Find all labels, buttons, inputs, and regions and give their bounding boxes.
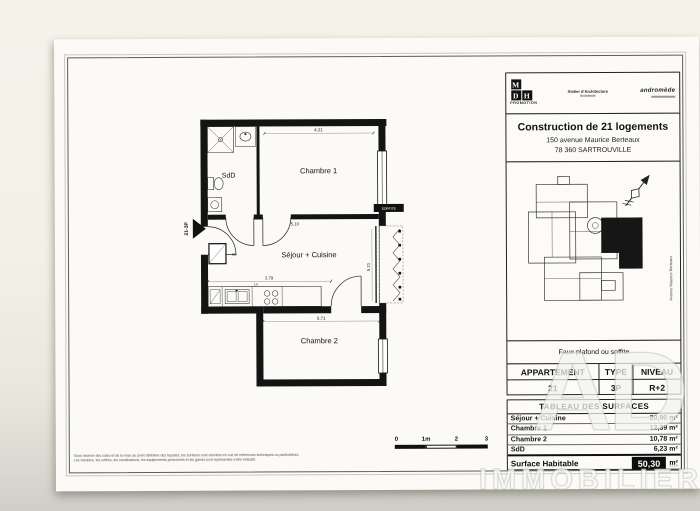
surfaces-table: TABLEAU DES SURFACES Séjour + Cuisine 20… — [507, 399, 682, 471]
scale-label-2: 2 — [455, 437, 458, 443]
value-type: 3P — [599, 380, 634, 395]
dim-kitchen-width: 3.79 — [265, 275, 274, 280]
entrance-label: 21-3P — [184, 221, 190, 235]
surface-label: Chambre 2 — [511, 435, 650, 443]
scale-bar: 0 1m 2 3 — [395, 437, 491, 453]
architect-title: Architecte — [540, 94, 635, 98]
scale-label-1m: 1m — [422, 437, 431, 443]
street-label: Avenue Maurice Berteaux — [668, 256, 673, 301]
room-label-sdd: SdD — [222, 173, 236, 180]
dim-sejour-height: 5.21 — [366, 262, 371, 271]
partner-logo: andromède — [635, 88, 675, 94]
project-title: Construction de 21 logements — [506, 121, 679, 134]
dim-chambre2-width: 5.71 — [317, 316, 326, 321]
room-label-chambre2: Chambre 2 — [301, 336, 338, 345]
surface-row: Chambre 1 12,39 m² — [508, 424, 681, 435]
drawing-frame: SOFFITE 21-3P EB — [67, 55, 685, 474]
logo-caption: PROMOTION — [510, 101, 540, 105]
soffite-label: SOFFITE — [382, 207, 397, 211]
closet-label: EB — [232, 253, 237, 257]
apartment-table-values: 21 3P R+2 — [508, 380, 681, 396]
surface-value: 12,39 m² — [650, 425, 678, 432]
surface-value: 6,23 m² — [654, 446, 678, 453]
apartment-location — [601, 217, 643, 268]
surface-value: 20,90 m² — [650, 415, 678, 422]
bathroom-fixtures — [207, 127, 255, 212]
kitchen-counter: LV — [208, 282, 321, 306]
room-label-chambre1: Chambre 1 — [300, 166, 337, 175]
value-niveau: R+2 — [634, 380, 681, 395]
ceiling-note: Faux plafond ou soffite — [506, 340, 681, 365]
header-niveau: NIVEAU — [634, 364, 681, 379]
window-chambre2 — [378, 339, 387, 373]
disclaimer-line-2: Les meubles, les coffres, les canalisati… — [74, 457, 404, 463]
partner-logo-block: andromède — [635, 88, 675, 98]
surface-row: Séjour + Cuisine 20,90 m² — [508, 414, 681, 425]
scale-label-0: 0 — [395, 437, 398, 443]
plan-document: SOFFITE 21-3P EB — [54, 37, 700, 492]
site-plan-box: Avenue Maurice Berteaux — [506, 161, 682, 342]
kitchen-label: LV — [254, 283, 259, 287]
closet: EB — [209, 244, 237, 264]
surface-row: SdD 6,23 m² — [508, 444, 681, 454]
disclaimer: Sous réserve des cotes et de la mise au … — [74, 453, 404, 463]
dimension-lines — [206, 131, 380, 323]
scale-bar-segments — [395, 445, 488, 449]
logo-letter-d: D — [511, 90, 521, 100]
north-arrow-icon — [622, 172, 654, 209]
fine-print: 2019 — [623, 464, 678, 468]
doors — [208, 217, 361, 307]
header-appartement: APPARTEMENT — [507, 364, 599, 379]
surface-value: 10,78 m² — [650, 435, 678, 442]
apartment-table-header: APPARTEMENT TYPE NIVEAU — [507, 364, 680, 381]
scale-label-3: 3 — [485, 437, 488, 443]
surface-total-label: Surface Habitable — [511, 459, 632, 469]
surface-total-row: Surface Habitable 50,30 m² — [508, 454, 681, 472]
title-block: M D H PROMOTION Atelier d'Architecture A… — [505, 72, 682, 73]
room-label-sejour: Séjour + Cuisine — [281, 250, 336, 259]
floor-plan: SOFFITE 21-3P EB — [168, 109, 419, 400]
window-chambre1 — [378, 151, 387, 209]
surface-row: Chambre 2 10,78 m² — [508, 434, 681, 445]
photo-background: SOFFITE 21-3P EB — [0, 0, 700, 511]
logo-box: M D H PROMOTION Atelier d'Architecture A… — [505, 72, 680, 115]
project-address-1: 150 avenue Maurice Berteaux — [506, 136, 679, 144]
surface-label: Chambre 1 — [511, 425, 650, 433]
value-appartement: 21 — [508, 380, 600, 395]
architect-block: Atelier d'Architecture Architecte — [540, 84, 635, 101]
surfaces-table-title: TABLEAU DES SURFACES — [508, 400, 681, 415]
project-address-2: 78 360 SARTROUVILLE — [506, 147, 679, 155]
project-title-box: Construction de 21 logements 150 avenue … — [505, 113, 680, 163]
surface-label: SdD — [511, 446, 654, 454]
apartment-table: APPARTEMENT TYPE NIVEAU 21 3P R+2 — [506, 363, 681, 396]
mdh-logo: M D H PROMOTION — [510, 79, 540, 108]
surface-label: Séjour + Cuisine — [511, 415, 650, 423]
header-type: TYPE — [599, 364, 634, 379]
logo-letter-h: H — [522, 90, 532, 100]
site-plan: Avenue Maurice Berteaux — [507, 162, 681, 341]
dim-sejour-width: 5.10 — [291, 221, 300, 226]
dim-chambre1-width: 4.21 — [314, 127, 323, 132]
logo-letter-m: M — [511, 79, 521, 89]
architect-name: Atelier d'Architecture — [540, 89, 635, 94]
partner-logo-subtext — [651, 95, 675, 97]
